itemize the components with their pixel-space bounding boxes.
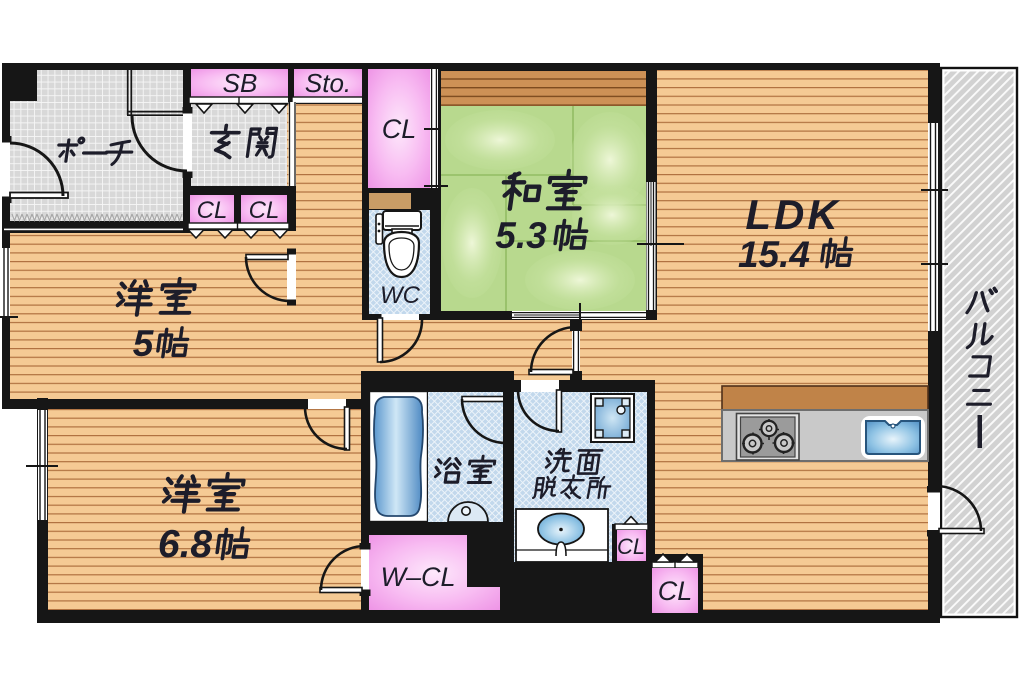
svg-text:WC: WC — [380, 282, 421, 309]
svg-text:SB: SB — [223, 68, 258, 98]
svg-text:Sto.: Sto. — [305, 68, 351, 98]
svg-text:5: 5 — [133, 323, 155, 364]
svg-text:15.4: 15.4 — [738, 234, 810, 275]
svg-text:6.8: 6.8 — [158, 523, 213, 566]
svg-text:W–CL: W–CL — [380, 562, 455, 592]
svg-text:CL: CL — [617, 534, 645, 559]
svg-text:CL: CL — [382, 114, 417, 144]
svg-text:CL: CL — [658, 576, 693, 606]
svg-text:5.3: 5.3 — [495, 215, 547, 256]
svg-text:LDK: LDK — [745, 191, 840, 238]
svg-text:CL: CL — [197, 197, 228, 224]
svg-text:CL: CL — [249, 197, 280, 224]
